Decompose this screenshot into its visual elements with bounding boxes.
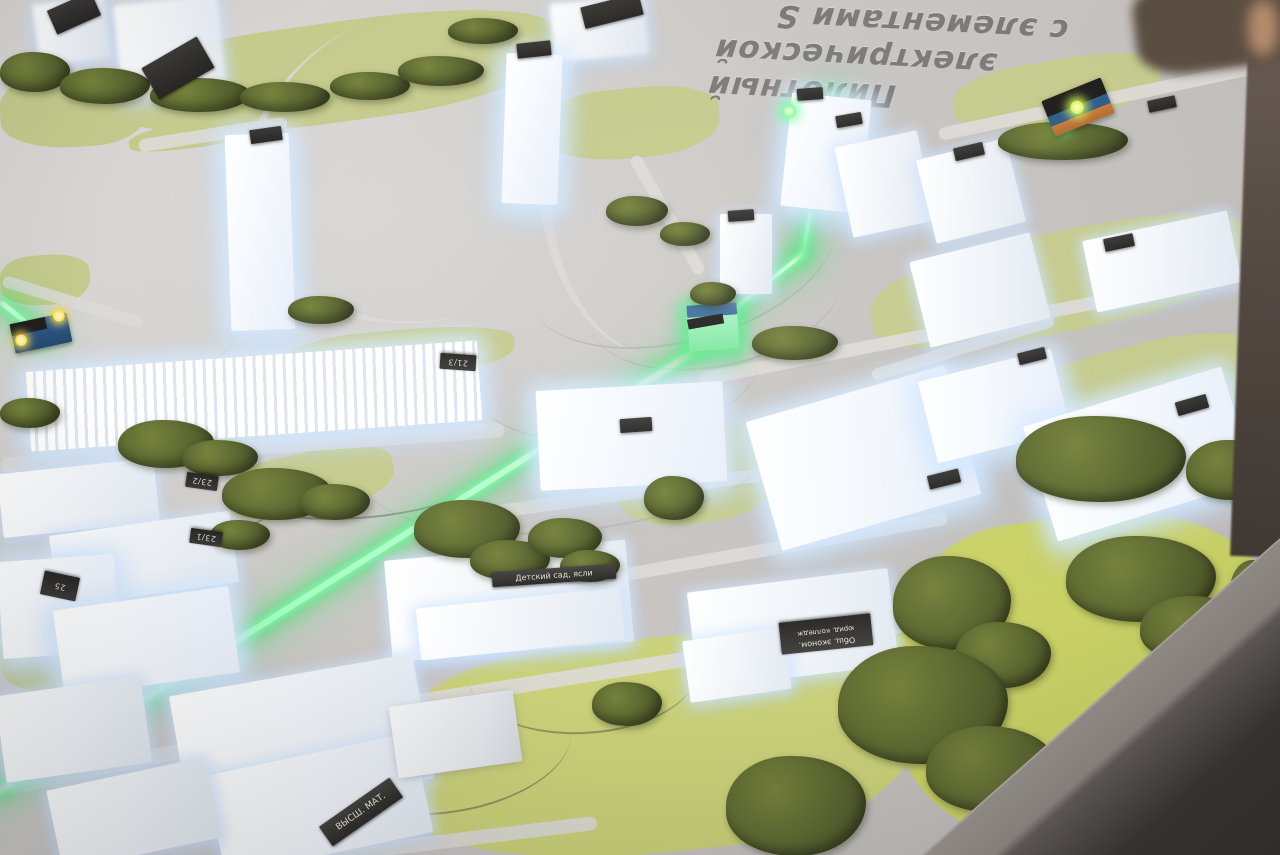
tree-cluster [60,68,150,104]
marker-dark-top [10,317,48,336]
tree-cluster [752,326,838,360]
tree-cluster [1016,416,1186,502]
tree-cluster [330,72,410,100]
tree-cluster [300,484,370,520]
tree-cluster [644,476,704,520]
building-number-plaque: 21/3 [439,353,476,371]
roof-solar-plaque [728,209,755,222]
roof-solar-plaque [620,417,653,433]
model-building [536,381,728,491]
substation-model [686,302,739,351]
marker-light [52,309,66,323]
tree-cluster [448,18,518,44]
tree-cluster [660,222,710,246]
tree-cluster [0,398,60,428]
tree-cluster [690,282,736,306]
bystander-blur [1248,0,1278,56]
tree-cluster [592,682,662,726]
model-building [225,133,296,331]
tree-cluster [606,196,668,226]
model-building [720,214,772,294]
tree-cluster [288,296,354,324]
model-photo: Пилотный электрической с элементами S Де… [0,0,1280,855]
tree-cluster [926,726,1056,812]
tree-cluster [398,56,484,86]
roof-solar-plaque [1147,95,1177,113]
tree-cluster [726,756,866,855]
model-building [834,130,935,237]
tree-cluster [240,82,330,112]
marker-light [1068,98,1086,116]
tree-cluster [1230,560,1280,620]
roof-solar-plaque [797,87,824,101]
led-indicator-dot [782,104,796,118]
marker-light [14,333,28,347]
model-building [501,53,562,205]
tree-cluster [1186,440,1276,500]
